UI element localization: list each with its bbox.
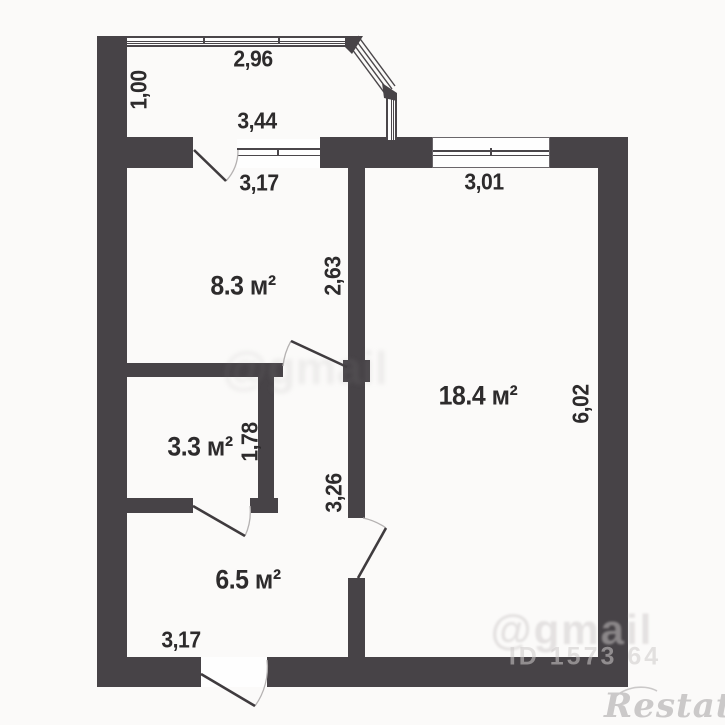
dim-room184-window: 3,01 — [464, 169, 503, 196]
area-room65: 6.5 м² — [215, 565, 280, 596]
watermark-id: ID 1573 64 — [509, 643, 661, 672]
dim-room83-depth: 2,63 — [320, 256, 347, 295]
dim-balcony-depth: 1,00 — [126, 70, 153, 109]
room33-door — [193, 506, 250, 536]
floor-plan: 2,96 1,00 3,44 3,17 3,01 2,63 1,78 3,26 … — [0, 0, 725, 725]
room184-door — [358, 518, 386, 578]
area-room83: 8.3 м² — [210, 271, 275, 302]
dim-hall-depth: 3,26 — [321, 473, 348, 512]
dim-balcony-width: 2,96 — [233, 46, 272, 73]
dim-room83-width: 3,17 — [239, 170, 278, 197]
dim-room184-depth: 6,02 — [568, 384, 595, 423]
dim-room83-outer: 3,44 — [237, 108, 276, 135]
balcony-door — [194, 150, 238, 181]
entrance-door — [201, 660, 267, 706]
watermark-center: @gmail — [223, 341, 388, 395]
restate-logo: Restate — [604, 686, 725, 725]
area-room184: 18.4 м² — [439, 381, 518, 412]
dim-room33-depth: 1,78 — [237, 422, 264, 461]
dim-room65-width: 3,17 — [161, 627, 200, 654]
area-room33: 3.3 м² — [167, 432, 232, 463]
